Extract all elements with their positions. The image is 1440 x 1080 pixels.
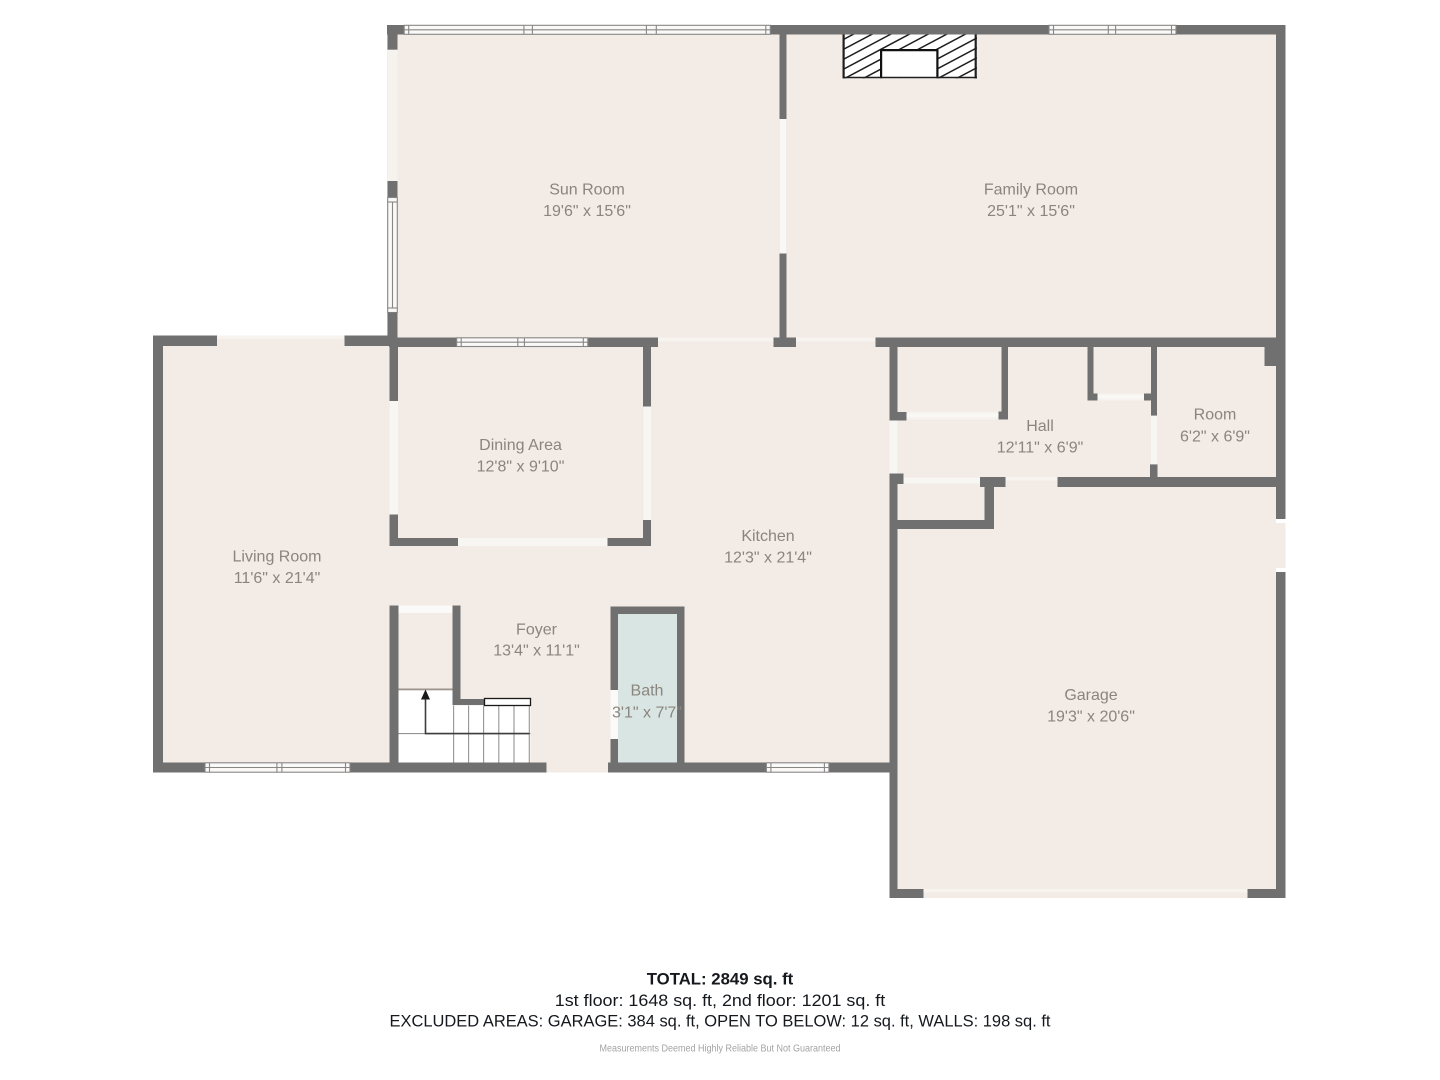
svg-text:19'6" x 15'6": 19'6" x 15'6" bbox=[543, 203, 631, 220]
svg-text:6'2" x 6'9": 6'2" x 6'9" bbox=[1180, 429, 1250, 446]
svg-text:TOTAL: 2849 sq. ft: TOTAL: 2849 sq. ft bbox=[647, 970, 794, 989]
svg-text:Garage: Garage bbox=[1064, 687, 1117, 704]
svg-text:Hall: Hall bbox=[1026, 418, 1054, 435]
svg-text:EXCLUDED AREAS: GARAGE: 384 sq: EXCLUDED AREAS: GARAGE: 384 sq. ft, OPEN… bbox=[390, 1013, 1051, 1031]
svg-text:12'11" x 6'9": 12'11" x 6'9" bbox=[997, 440, 1084, 457]
svg-text:12'3" x 21'4": 12'3" x 21'4" bbox=[724, 550, 812, 567]
svg-text:Measurements Deemed Highly Rel: Measurements Deemed Highly Reliable But … bbox=[600, 1044, 841, 1055]
svg-text:Sun Room: Sun Room bbox=[549, 182, 625, 199]
svg-text:Bath: Bath bbox=[631, 683, 664, 700]
svg-text:Dining Area: Dining Area bbox=[479, 437, 562, 454]
svg-text:25'1" x 15'6": 25'1" x 15'6" bbox=[987, 203, 1075, 220]
svg-text:Family Room: Family Room bbox=[984, 182, 1078, 199]
svg-text:Kitchen: Kitchen bbox=[741, 528, 794, 545]
svg-text:12'8" x 9'10": 12'8" x 9'10" bbox=[477, 458, 565, 475]
svg-text:11'6" x 21'4": 11'6" x 21'4" bbox=[234, 570, 321, 587]
svg-text:Foyer: Foyer bbox=[516, 621, 558, 638]
svg-text:3'1" x 7'7": 3'1" x 7'7" bbox=[612, 705, 682, 722]
svg-text:13'4" x 11'1": 13'4" x 11'1" bbox=[493, 643, 580, 660]
svg-text:Living Room: Living Room bbox=[233, 549, 322, 566]
svg-text:Room: Room bbox=[1194, 407, 1237, 424]
svg-text:19'3" x 20'6": 19'3" x 20'6" bbox=[1047, 709, 1135, 726]
svg-text:1st floor: 1648 sq. ft, 2nd fl: 1st floor: 1648 sq. ft, 2nd floor: 1201 … bbox=[555, 992, 886, 1010]
